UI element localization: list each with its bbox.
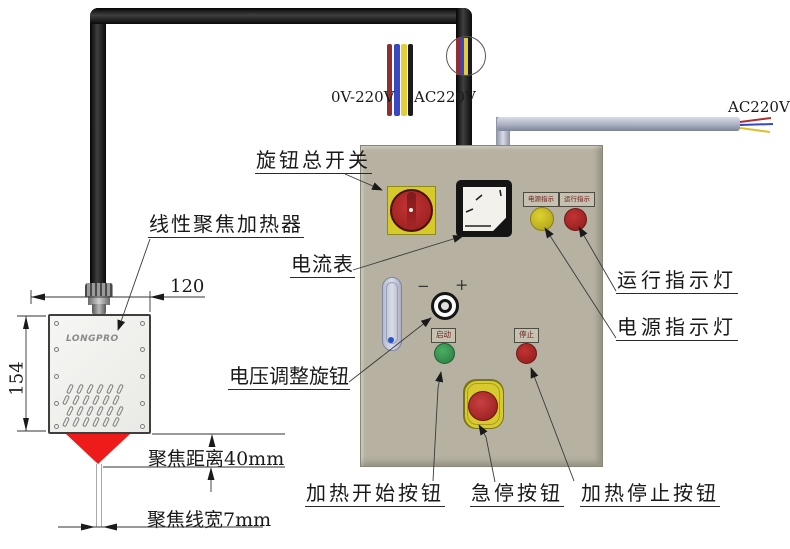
- stop-plate: 停止: [514, 328, 539, 343]
- brand-logo: LONGPRO: [66, 334, 119, 344]
- heater-box: LONGPRO: [48, 314, 151, 434]
- plus-sign: +: [455, 275, 468, 294]
- wire-yellow: [401, 44, 407, 116]
- rotary-switch-dot: [409, 208, 413, 212]
- vent-slot: [86, 384, 94, 395]
- callout-knob-switch: 旋钮总开关: [255, 149, 372, 174]
- run-indicator-plate: 运行指示: [559, 192, 595, 207]
- vent-slot: [82, 417, 90, 428]
- wiring-diagram: 0V-220V AC220V AC220V 电源指示 运行指示 − + 启动 停…: [0, 0, 790, 549]
- vent-slot: [112, 417, 120, 428]
- screw: [54, 347, 59, 352]
- dim-box-height: 154: [7, 357, 28, 401]
- dim-focus-width: 聚焦线宽7mm: [147, 505, 271, 532]
- vent-slot: [116, 406, 124, 417]
- vent-slot: [106, 406, 114, 417]
- vent-slot: [66, 384, 74, 395]
- door-handle-inner: [386, 282, 398, 344]
- cable-gland-top: [85, 283, 113, 297]
- bundle-right-label: AC220V: [414, 88, 476, 106]
- callout-voltage-knob: 电压调整旋钮: [228, 365, 350, 390]
- vent-slot: [92, 395, 100, 406]
- vent-slot: [102, 395, 110, 406]
- callout-ammeter: 电流表: [290, 253, 355, 278]
- vent-slot: [82, 395, 90, 406]
- wire-black: [408, 44, 413, 116]
- door-handle-dot: [388, 337, 394, 343]
- screw: [54, 424, 59, 429]
- dim-focus-distance: 聚焦距离40mm: [148, 444, 284, 471]
- ac-output-label: AC220V: [728, 98, 790, 116]
- heater-cable-top: [90, 8, 472, 24]
- vent-slot: [96, 384, 104, 395]
- ammeter-face: [463, 187, 506, 231]
- estop-button[interactable]: [468, 391, 498, 421]
- screw: [54, 321, 59, 326]
- focus-cone: [66, 434, 130, 464]
- cable-detail-circle: [446, 36, 486, 76]
- vent-slot: [62, 417, 70, 428]
- power-indicator-light: [530, 207, 554, 231]
- stop-button[interactable]: [516, 343, 537, 364]
- vent-slot: [72, 395, 80, 406]
- vent-slot: [112, 395, 120, 406]
- vent-slot: [62, 395, 70, 406]
- screw: [140, 374, 145, 379]
- callout-power-light: 电源指示灯: [616, 316, 738, 341]
- screw: [140, 321, 145, 326]
- callout-estop: 急停按钮: [470, 482, 564, 507]
- vent-slot: [102, 417, 110, 428]
- conduit-horizontal: [497, 117, 740, 131]
- callout-heater: 线性聚焦加热器: [148, 213, 304, 238]
- screw: [140, 401, 145, 406]
- minus-sign: −: [417, 277, 430, 295]
- vent-slot: [76, 384, 84, 395]
- vent-slot: [116, 384, 124, 395]
- screw: [140, 424, 145, 429]
- panel-cable-vertical: [456, 8, 472, 145]
- heater-cable-vertical: [90, 8, 106, 286]
- vent-row: [64, 417, 124, 427]
- voltage-knob-center[interactable]: [438, 299, 452, 313]
- vent-slot: [72, 417, 80, 428]
- vent-row: [68, 406, 128, 416]
- vent-row: [68, 384, 128, 394]
- screw: [54, 401, 59, 406]
- vent-slot: [66, 406, 74, 417]
- vent-slot: [76, 406, 84, 417]
- bundle-left-label: 0V-220V: [331, 88, 395, 106]
- callout-heat-start: 加热开始按钮: [305, 482, 445, 507]
- start-button[interactable]: [434, 343, 455, 364]
- power-indicator-plate: 电源指示: [523, 192, 559, 207]
- vent-slot: [92, 417, 100, 428]
- vent-slot: [86, 406, 94, 417]
- start-plate: 启动: [431, 328, 456, 343]
- screw: [140, 347, 145, 352]
- callout-heat-stop: 加热停止按钮: [580, 482, 720, 507]
- vent-row: [64, 395, 124, 405]
- run-indicator-light: [564, 208, 587, 231]
- vent-slot: [96, 406, 104, 417]
- screw: [54, 374, 59, 379]
- callout-run-light: 运行指示灯: [616, 269, 738, 294]
- vent-slot: [106, 384, 114, 395]
- dim-box-width: 120: [170, 276, 204, 297]
